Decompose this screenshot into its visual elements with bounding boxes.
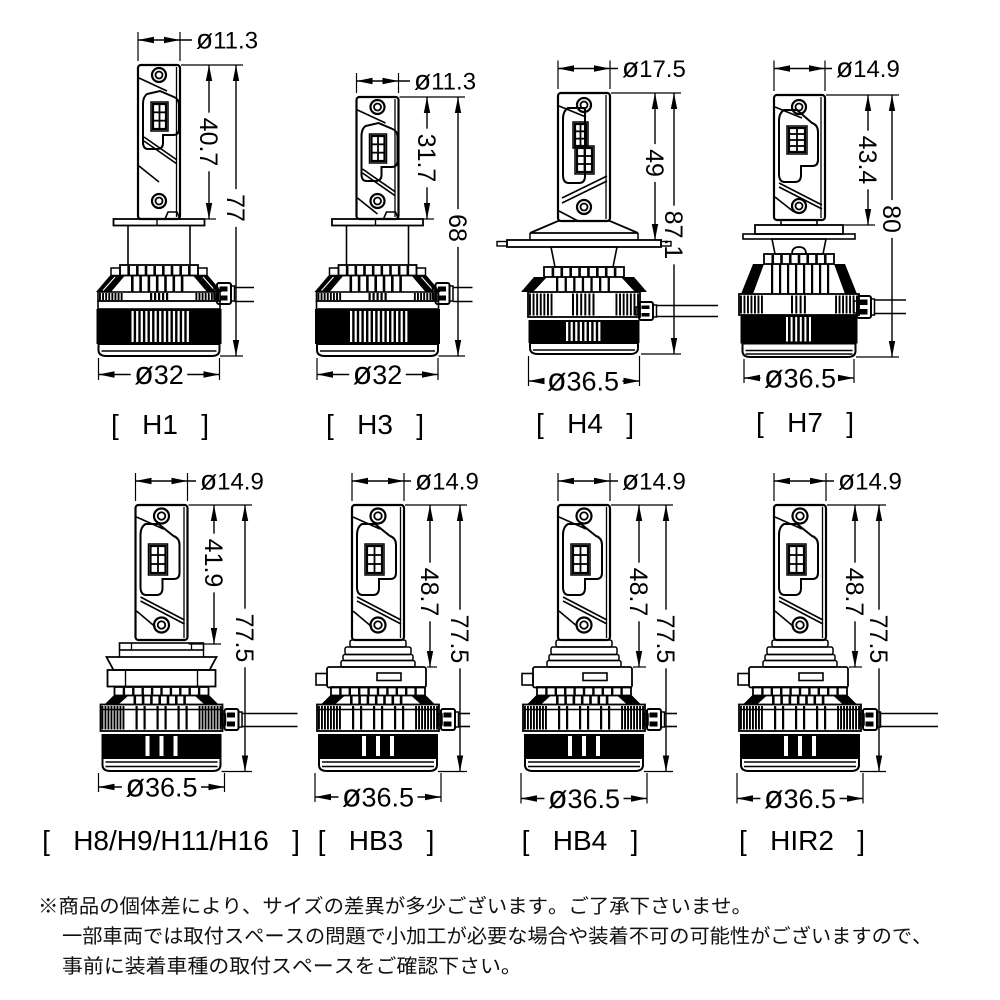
- svg-text:ø36.5: ø36.5: [547, 362, 619, 398]
- svg-text:77.5: 77.5: [864, 615, 892, 664]
- svg-text:ø14.9: ø14.9: [415, 465, 479, 496]
- svg-text:ø11.3: ø11.3: [414, 65, 476, 96]
- svg-text:[ H8/H9/H11/H16 ]: [ H8/H9/H11/H16 ]: [42, 825, 300, 856]
- svg-text:ø14.9: ø14.9: [622, 465, 686, 496]
- svg-text:48.7: 48.7: [840, 568, 868, 617]
- svg-text:[ H4 ]: [ H4 ]: [536, 408, 634, 439]
- svg-text:ø11.3: ø11.3: [196, 24, 258, 55]
- svg-text:[ HB4 ]: [ HB4 ]: [522, 825, 639, 856]
- svg-text:77.5: 77.5: [651, 615, 679, 664]
- svg-text:49: 49: [640, 149, 668, 177]
- svg-text:68: 68: [443, 214, 471, 242]
- svg-text:[ H1 ]: [ H1 ]: [111, 409, 209, 440]
- svg-text:48.7: 48.7: [415, 568, 443, 617]
- svg-text:87.1: 87.1: [659, 211, 687, 260]
- svg-text:ø17.5: ø17.5: [622, 52, 686, 83]
- svg-text:ø14.9: ø14.9: [838, 465, 902, 496]
- svg-text:ø14.9: ø14.9: [836, 52, 900, 83]
- svg-text:40.7: 40.7: [194, 118, 222, 167]
- svg-text:ø36.5: ø36.5: [548, 779, 620, 815]
- svg-text:ø36.5: ø36.5: [764, 359, 836, 395]
- svg-text:77.5: 77.5: [230, 614, 258, 663]
- svg-text:41.9: 41.9: [199, 539, 227, 588]
- svg-text:[ HIR2 ]: [ HIR2 ]: [739, 825, 865, 856]
- svg-text:80: 80: [877, 205, 905, 233]
- svg-text:ø36.5: ø36.5: [342, 778, 414, 814]
- svg-text:77.5: 77.5: [445, 615, 473, 664]
- svg-text:ø36.5: ø36.5: [125, 768, 197, 804]
- svg-text:31.7: 31.7: [412, 134, 440, 183]
- svg-text:48.7: 48.7: [624, 568, 652, 617]
- svg-text:ø32: ø32: [353, 355, 403, 391]
- svg-text:[ H7 ]: [ H7 ]: [756, 407, 854, 438]
- svg-text:ø14.9: ø14.9: [200, 465, 264, 496]
- svg-text:[ HB3 ]: [ HB3 ]: [318, 825, 435, 856]
- svg-text:[ H3 ]: [ H3 ]: [326, 409, 424, 440]
- svg-text:ø36.5: ø36.5: [764, 779, 836, 815]
- svg-text:43.4: 43.4: [853, 136, 881, 185]
- svg-text:77: 77: [221, 194, 249, 222]
- svg-text:ø32: ø32: [134, 355, 184, 391]
